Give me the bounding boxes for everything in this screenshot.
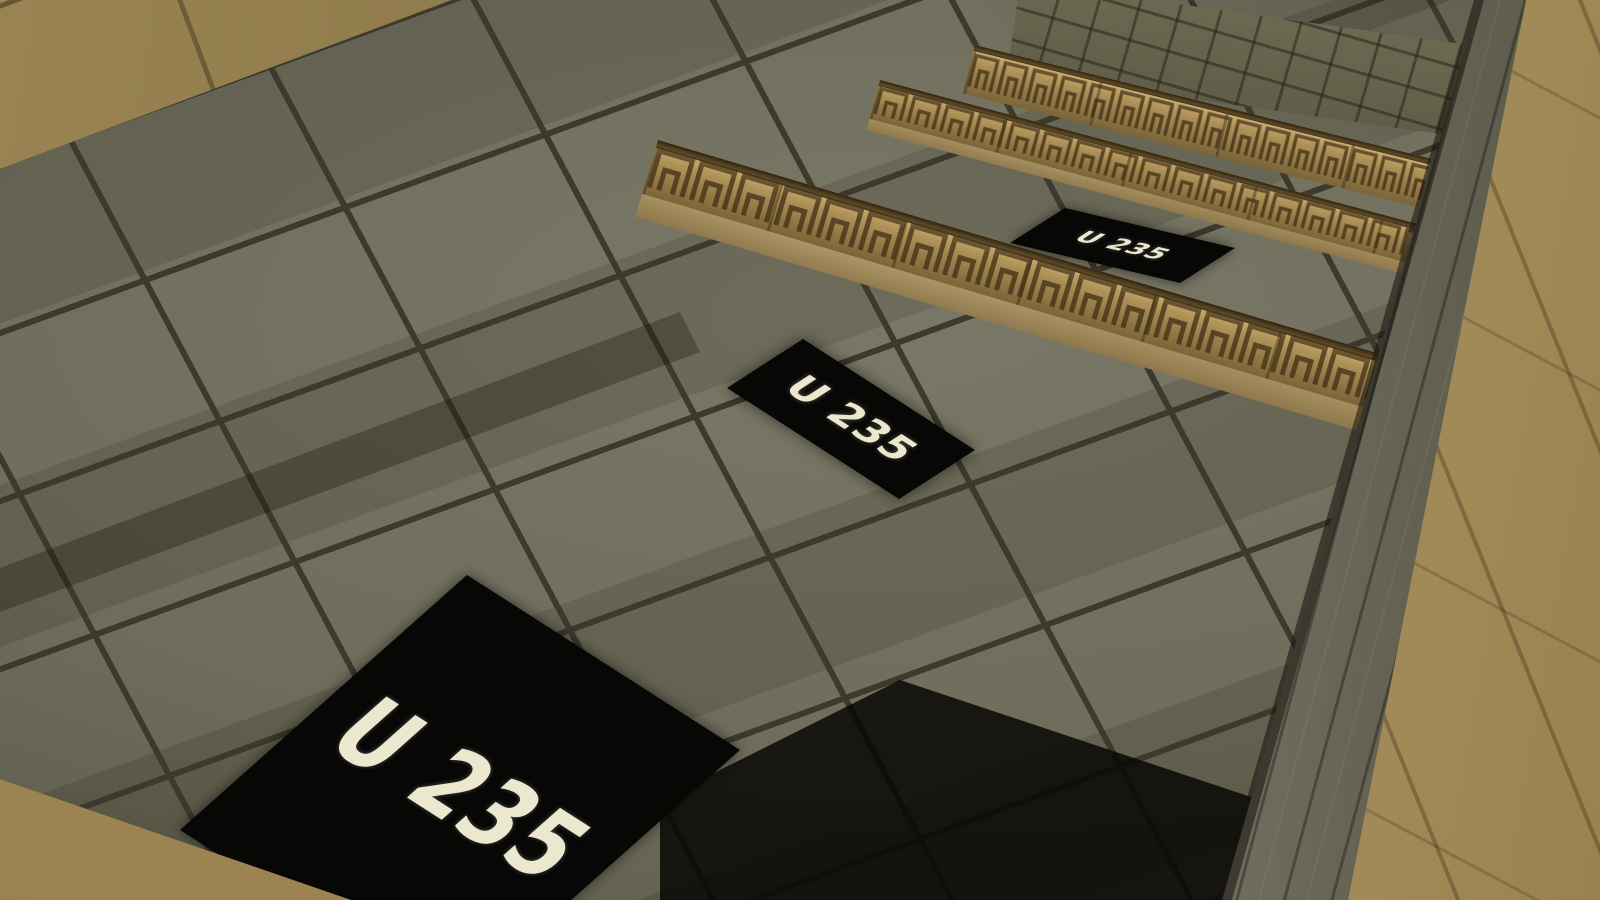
banner-text: U 235 — [1067, 228, 1178, 264]
banner-text: U 235 — [304, 679, 615, 900]
game-viewport[interactable]: U 235 U 235 U 235 — [0, 0, 1600, 900]
